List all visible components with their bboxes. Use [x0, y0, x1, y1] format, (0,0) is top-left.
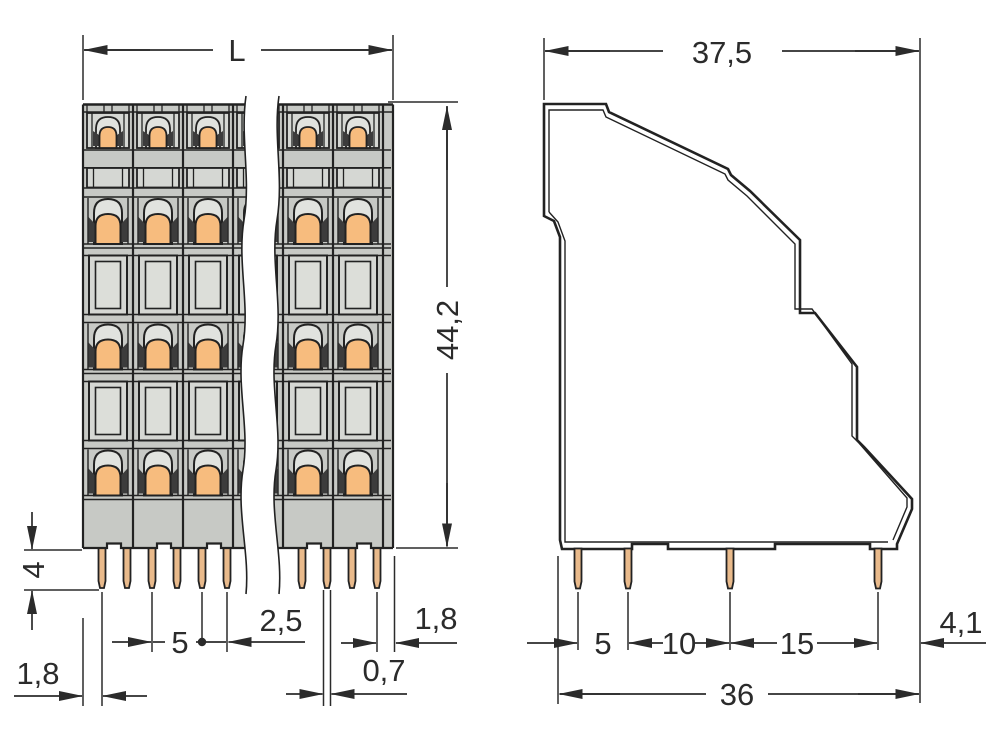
wire-entry-pane	[196, 262, 221, 309]
lever-orange	[296, 466, 321, 496]
wire-entry-pane	[346, 388, 371, 435]
dim-front-length: L	[83, 33, 393, 100]
solder-pin	[875, 549, 882, 589]
lever-orange	[196, 340, 221, 370]
wire-entry-pane	[346, 262, 371, 309]
dim-label-front-pin-width: 0,7	[362, 653, 405, 688]
lever-orange	[96, 340, 121, 370]
solder-pin	[99, 548, 106, 588]
dim-front-last-pin-to-edge: 1,8	[341, 556, 458, 652]
lever-orange	[96, 466, 121, 496]
dim-front-pin-spacing: 2,5	[203, 592, 305, 652]
dim-label-front-height: 44,2	[430, 300, 465, 360]
solder-pin	[299, 548, 306, 588]
lever-orange	[350, 127, 367, 148]
dim-label-side-depth: 37,5	[692, 35, 752, 70]
dim-side-depth: 37,5	[544, 35, 920, 703]
lever-orange	[346, 214, 371, 244]
wire-entry-pane	[296, 388, 321, 435]
wire-entry-pane	[146, 388, 171, 435]
wire-entry-pane	[196, 388, 221, 435]
solder-pin	[199, 548, 206, 588]
housing-inner-line-left-bottom	[549, 212, 888, 542]
wire-entry-pane	[96, 262, 121, 309]
lever-orange	[200, 127, 217, 148]
wire-entry-pane	[296, 262, 321, 309]
lever-orange	[196, 214, 221, 244]
wire-entry-pane	[96, 388, 121, 435]
dim-side-pin1-pin2: 5	[527, 626, 612, 661]
lever-orange	[146, 466, 171, 496]
dim-side-footprint: 36	[558, 556, 919, 712]
side-view	[544, 104, 912, 589]
solder-pin	[224, 548, 231, 588]
lever-orange	[146, 340, 171, 370]
lever-orange	[146, 214, 171, 244]
lever-orange	[346, 340, 371, 370]
solder-pin	[625, 549, 632, 589]
lever-orange	[150, 127, 167, 148]
solder-pin	[374, 548, 381, 588]
drawing-canvas: L 44,2 4 1,8	[0, 0, 1000, 738]
lever-orange	[100, 127, 117, 148]
dim-label-front-edge-to-first-pin: 1,8	[16, 656, 59, 691]
lever-orange	[296, 214, 321, 244]
side-solder-pins	[575, 549, 882, 589]
dim-side-pin4-to-edge: 4,1	[921, 605, 986, 643]
dim-label-side-pin2-pin3: 10	[662, 626, 696, 661]
front-view	[83, 96, 393, 594]
dim-side-pin3-pin4: 15	[731, 626, 877, 661]
dim-label-front-length: L	[228, 33, 245, 68]
solder-pin	[727, 549, 734, 589]
lever-orange	[346, 466, 371, 496]
lever-orange	[296, 340, 321, 370]
dim-label-side-pin4-to-edge: 4,1	[939, 605, 982, 640]
break-lines	[241, 96, 280, 594]
dim-front-pin-width: 0,7	[286, 590, 407, 706]
dim-label-front-last-pin-to-edge: 1,8	[414, 601, 457, 636]
housing-body-side	[544, 104, 912, 549]
dim-side-pin2-pin3: 10	[629, 626, 729, 661]
dim-front-pole-pitch: 5	[112, 592, 206, 660]
solder-pin	[324, 548, 331, 588]
dim-label-front-pin-spacing: 2,5	[259, 603, 302, 638]
housing-inner-line-top	[549, 110, 907, 540]
dim-label-front-pole-pitch: 5	[171, 625, 188, 660]
lever-orange	[300, 127, 317, 148]
solder-pin	[349, 548, 356, 588]
dim-front-edge-to-first-pin: 1,8	[14, 592, 147, 706]
lever-orange	[96, 214, 121, 244]
dim-label-side-pin3-pin4: 15	[780, 626, 814, 661]
dim-label-front-pin-length: 4	[16, 561, 51, 578]
technical-drawing: L 44,2 4 1,8	[0, 0, 1000, 738]
solder-pin	[149, 548, 156, 588]
solder-pin	[575, 549, 582, 589]
solder-pin	[174, 548, 181, 588]
solder-pin	[124, 548, 131, 588]
wire-entry-pane	[146, 262, 171, 309]
side-dimensions: 37,5 5 10 15 4,1	[527, 35, 986, 712]
dim-front-height: 44,2	[388, 102, 465, 548]
dim-label-side-footprint: 36	[720, 677, 754, 712]
dim-label-side-pin1-pin2: 5	[594, 626, 611, 661]
lever-orange	[196, 466, 221, 496]
